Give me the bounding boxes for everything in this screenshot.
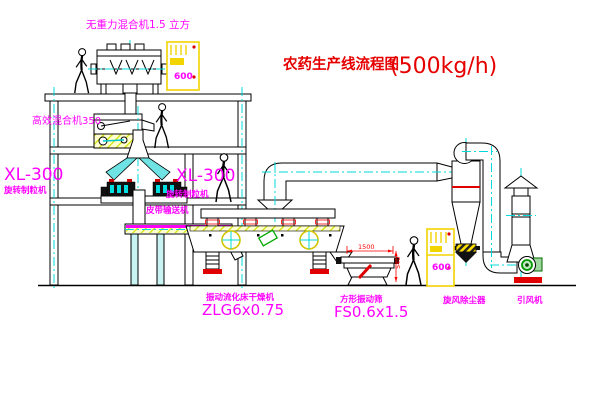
control-cabinet-right: 600: [427, 229, 454, 286]
person-ground: [406, 237, 421, 285]
granulator-left-model: XL-300: [4, 165, 63, 185]
belt-conveyor-label: 皮带输送机: [145, 205, 189, 216]
diagram-canvas: 600: [0, 0, 600, 403]
page-title: 农药生产线流程图: [282, 55, 399, 73]
cabinet-right-text: 600: [432, 263, 451, 273]
dryer-model-label: ZLG6x0.75: [202, 301, 284, 319]
high-eff-mixer-label: 高效混合机350: [32, 114, 101, 127]
y-duct-right: [139, 158, 170, 180]
cad-flow-diagram: 600: [0, 0, 600, 403]
fluid-bed-dryer: [186, 209, 352, 274]
cabinet-panel: [430, 246, 442, 252]
granulator-discharge-pipe: [133, 190, 145, 225]
vibrating-screen: 1500 540: [336, 243, 402, 285]
fan-base: [514, 277, 542, 283]
granulator-left-name: 旋转制粒机: [3, 185, 47, 196]
dim-1500: 1500: [358, 243, 375, 251]
cabinet-top-text: 600: [174, 72, 193, 82]
granulator-right-name: 旋转制粒机: [165, 189, 209, 200]
fan-label: 引风机: [517, 295, 543, 306]
person-top-floor: [75, 49, 89, 93]
dim-540: 540: [394, 257, 402, 269]
page-title-capacity: (500kg/h): [390, 54, 497, 79]
cyclone-label: 旋风除尘器: [442, 295, 486, 306]
gravity-mixer-label: 无重力混合机1.5 立方: [86, 18, 190, 31]
rotary-valve: [456, 244, 476, 252]
cyclone-discharge: [455, 252, 477, 263]
person-second-floor: [155, 104, 169, 148]
y-duct-left: [106, 158, 137, 180]
cabinet-panel: [170, 58, 184, 65]
high-efficiency-mixer: [94, 114, 154, 148]
dryer-spring-mounts: [203, 252, 329, 274]
screen-model-label: FS0.6x1.5: [334, 303, 408, 321]
stack-cap: [505, 176, 537, 188]
granulator-right-model: XL-300: [176, 166, 235, 186]
control-cabinet-top: 600: [167, 42, 199, 90]
